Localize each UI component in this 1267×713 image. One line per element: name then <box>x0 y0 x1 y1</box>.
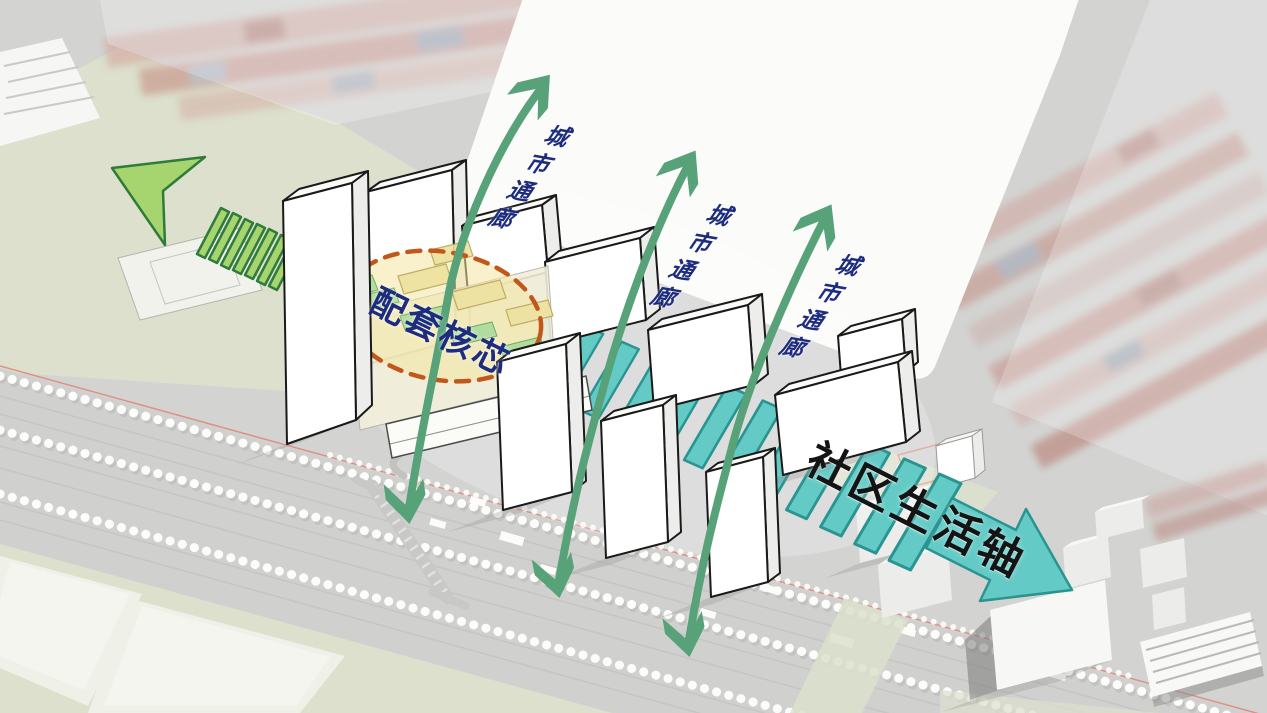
building-tall-tower <box>283 183 356 444</box>
building-mid-tower-1 <box>497 344 572 510</box>
site-analysis-diagram: 城市通廊 城市通廊 城市通廊 配套核芯 社区生活轴 <box>0 0 1267 713</box>
building-mid-tower-2 <box>601 405 668 558</box>
site-plan-canvas <box>0 0 1267 713</box>
